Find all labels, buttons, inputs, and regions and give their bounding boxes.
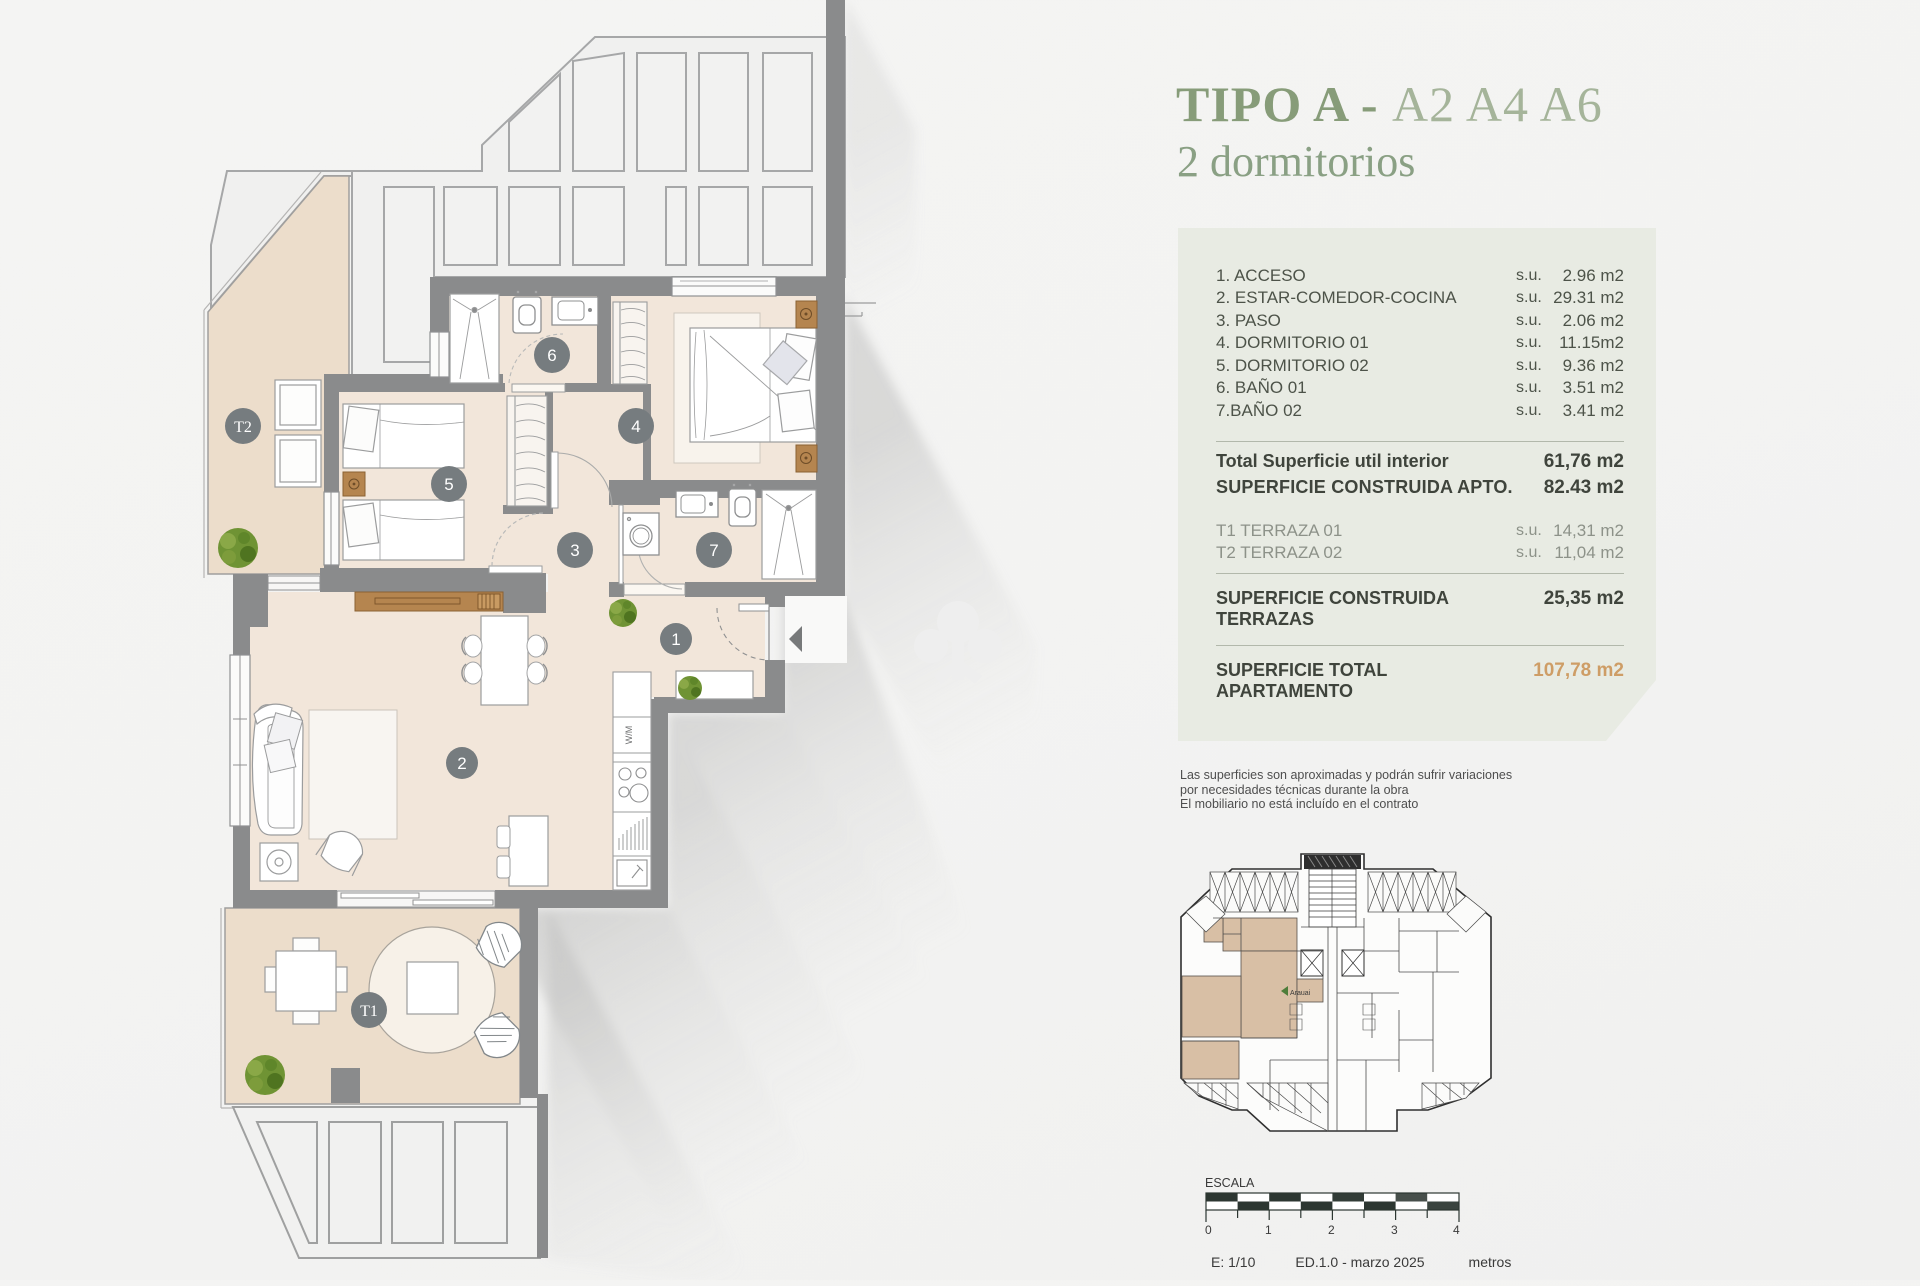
svg-text:T2: T2 [234, 419, 252, 436]
svg-text:1: 1 [671, 630, 680, 649]
svg-text:T1: T1 [360, 1003, 378, 1020]
svg-text:4: 4 [1453, 1223, 1460, 1237]
svg-text:0: 0 [1205, 1223, 1212, 1237]
svg-text:4: 4 [631, 417, 640, 436]
svg-text:3: 3 [1391, 1223, 1398, 1237]
svg-text:6: 6 [547, 346, 556, 365]
svg-text:W/M: W/M [624, 726, 634, 745]
svg-text:2: 2 [457, 754, 466, 773]
svg-text:2: 2 [1328, 1223, 1335, 1237]
svg-text:1: 1 [1265, 1223, 1272, 1237]
svg-text:5: 5 [444, 475, 453, 494]
svg-text:7: 7 [709, 541, 718, 560]
svg-text:3: 3 [570, 541, 579, 560]
svg-text:Arauai: Arauai [1290, 990, 1311, 997]
